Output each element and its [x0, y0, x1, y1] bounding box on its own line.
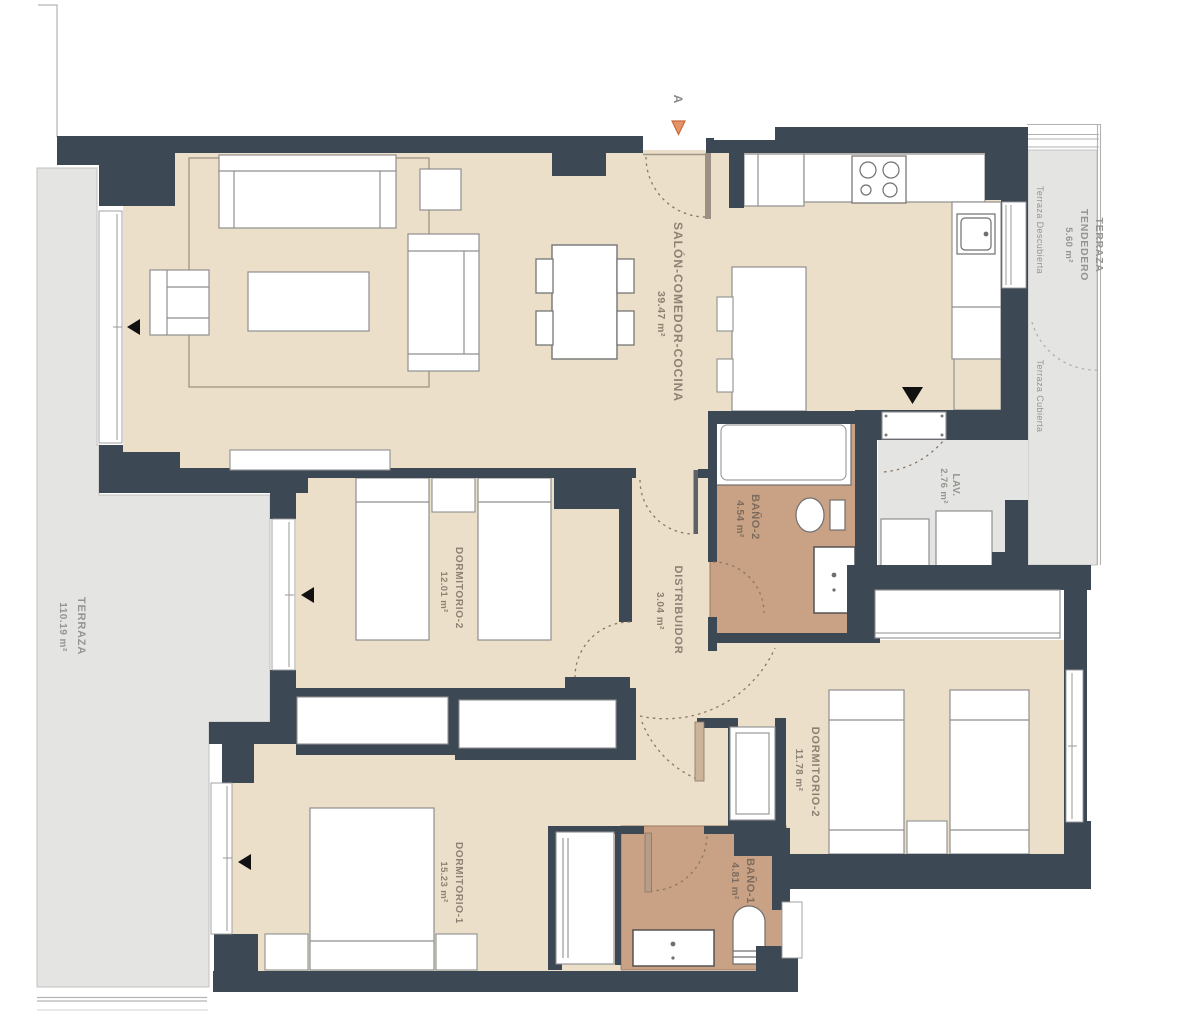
svg-text:TERRAZA: TERRAZA [1093, 217, 1105, 272]
svg-text:DORMITORIO-1: DORMITORIO-1 [453, 842, 464, 924]
svg-text:110.19 m²: 110.19 m² [57, 602, 68, 652]
svg-text:DORMITORIO-2: DORMITORIO-2 [809, 727, 821, 818]
svg-text:SALÓN-COMEDOR-COCINA: SALÓN-COMEDOR-COCINA [671, 222, 686, 402]
svg-text:DORMITORIO-2: DORMITORIO-2 [453, 547, 464, 629]
svg-text:12.01 m²: 12.01 m² [438, 571, 449, 612]
svg-text:11.78 m²: 11.78 m² [793, 749, 804, 792]
svg-text:LAV.: LAV. [950, 473, 961, 496]
svg-text:Terraza Descubierta: Terraza Descubierta [1035, 186, 1045, 274]
svg-text:3.04 m²: 3.04 m² [654, 592, 665, 630]
svg-text:2.76 m²: 2.76 m² [938, 468, 949, 504]
svg-text:Terraza Cubierta: Terraza Cubierta [1035, 360, 1045, 433]
svg-text:39.47 m²: 39.47 m² [655, 291, 667, 337]
svg-text:4.54 m²: 4.54 m² [734, 500, 745, 538]
svg-text:TERRAZA: TERRAZA [75, 597, 87, 655]
svg-text:TENDEDERO: TENDEDERO [1078, 209, 1090, 281]
svg-text:BAÑO-2: BAÑO-2 [749, 494, 762, 540]
svg-text:DISTRIBUIDOR: DISTRIBUIDOR [672, 565, 684, 654]
svg-text:5.60 m²: 5.60 m² [1063, 227, 1074, 263]
svg-text:BAÑO-1: BAÑO-1 [744, 858, 757, 904]
svg-text:A: A [671, 95, 685, 104]
svg-text:15.23 m²: 15.23 m² [438, 861, 449, 902]
svg-text:4.81 m²: 4.81 m² [729, 862, 740, 900]
